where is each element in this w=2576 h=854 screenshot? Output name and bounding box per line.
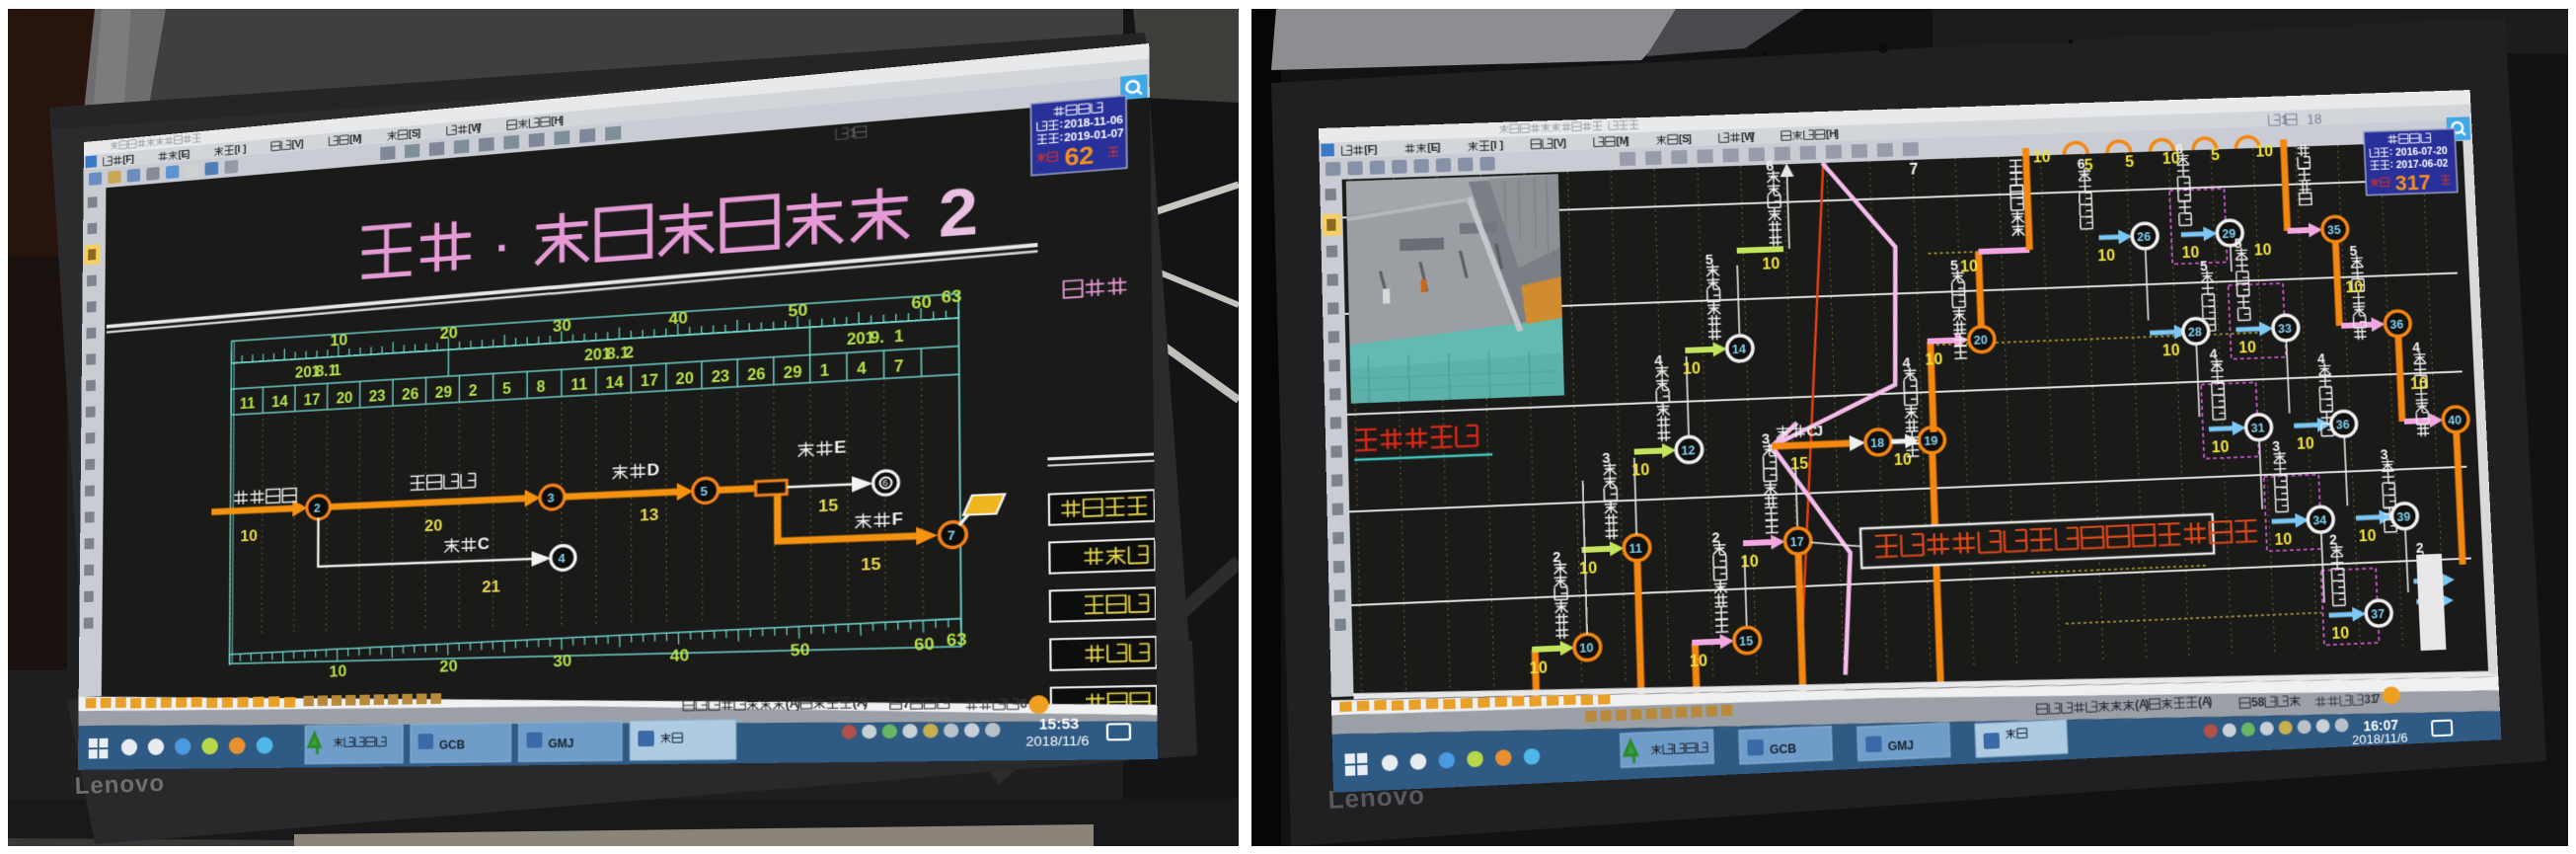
svg-text:GMJ: GMJ xyxy=(1888,738,1915,753)
svg-text:5: 5 xyxy=(502,381,511,399)
svg-text:5: 5 xyxy=(2211,146,2221,164)
svg-text:7: 7 xyxy=(1909,161,1919,179)
svg-text:10: 10 xyxy=(2274,530,2293,549)
svg-text:20: 20 xyxy=(439,657,458,675)
svg-text:11: 11 xyxy=(240,396,256,414)
svg-text:15: 15 xyxy=(1739,634,1754,649)
svg-text:8: 8 xyxy=(537,379,546,397)
svg-text:12: 12 xyxy=(1681,443,1696,457)
svg-text:2: 2 xyxy=(295,364,303,381)
svg-text:]: ] xyxy=(358,133,362,145)
svg-text:5: 5 xyxy=(2125,153,2135,171)
svg-text:10: 10 xyxy=(1925,350,1943,368)
svg-text:37: 37 xyxy=(2371,607,2385,621)
svg-text:10: 10 xyxy=(1690,652,1708,670)
svg-text:29: 29 xyxy=(784,363,802,382)
svg-text:2: 2 xyxy=(469,383,478,401)
svg-text:10: 10 xyxy=(2358,527,2376,545)
svg-text:10: 10 xyxy=(1683,359,1702,378)
svg-text:8: 8 xyxy=(316,363,325,381)
svg-text:): ) xyxy=(2145,697,2150,711)
svg-text:Lenovo: Lenovo xyxy=(74,770,165,800)
svg-text:62: 62 xyxy=(1064,141,1094,171)
svg-text:29: 29 xyxy=(435,384,452,402)
svg-text:34: 34 xyxy=(2312,513,2326,527)
svg-text:14: 14 xyxy=(271,394,288,412)
svg-text:11: 11 xyxy=(1629,542,1642,557)
svg-text:10: 10 xyxy=(1529,659,1548,677)
svg-text:10: 10 xyxy=(1762,255,1780,272)
svg-text::: : xyxy=(1059,118,1063,130)
svg-text:GMJ: GMJ xyxy=(548,738,573,751)
svg-text:35: 35 xyxy=(2327,223,2341,237)
svg-text:2: 2 xyxy=(314,503,321,515)
svg-text::: : xyxy=(2389,160,2393,171)
svg-text:11: 11 xyxy=(570,376,587,395)
svg-text:10: 10 xyxy=(1960,258,1978,275)
svg-text:0: 0 xyxy=(303,364,311,381)
svg-text:15:53: 15:53 xyxy=(1039,716,1080,733)
svg-text:2: 2 xyxy=(939,175,979,251)
svg-text:D: D xyxy=(646,461,659,480)
svg-text:23: 23 xyxy=(712,368,730,387)
svg-text:]: ] xyxy=(1499,140,1503,152)
svg-text:F: F xyxy=(892,510,903,530)
svg-text:C: C xyxy=(478,535,490,554)
svg-text:36: 36 xyxy=(2336,418,2350,431)
svg-text:7: 7 xyxy=(947,529,955,543)
svg-text:]: ] xyxy=(1437,142,1441,154)
svg-text:2016-07-20: 2016-07-20 xyxy=(2395,145,2448,158)
svg-text:17: 17 xyxy=(641,372,658,391)
svg-text:40: 40 xyxy=(2448,414,2462,427)
svg-text:0: 0 xyxy=(593,346,602,363)
svg-text:): ) xyxy=(2208,695,2213,709)
svg-text:26: 26 xyxy=(402,386,418,404)
svg-text:63: 63 xyxy=(942,287,962,308)
svg-text:.: . xyxy=(615,345,620,362)
svg-text:40: 40 xyxy=(669,309,688,329)
svg-text:17: 17 xyxy=(1789,535,1804,550)
svg-text:10: 10 xyxy=(240,527,258,546)
svg-text:14: 14 xyxy=(605,374,623,393)
svg-text:I: I xyxy=(238,144,241,156)
svg-text:10: 10 xyxy=(2162,342,2180,359)
svg-text:2017-06-02: 2017-06-02 xyxy=(2396,158,2449,171)
svg-text:]: ] xyxy=(243,144,246,156)
svg-text:]: ] xyxy=(187,149,189,161)
svg-text:19: 19 xyxy=(1924,434,1937,448)
svg-text:36: 36 xyxy=(2389,318,2403,332)
svg-text:20: 20 xyxy=(676,370,694,389)
svg-text:15: 15 xyxy=(818,497,838,516)
svg-text:9: 9 xyxy=(871,329,880,348)
svg-text:6: 6 xyxy=(882,478,888,489)
svg-text:2: 2 xyxy=(625,344,634,361)
svg-text:4: 4 xyxy=(857,360,867,379)
svg-text:10: 10 xyxy=(330,331,347,349)
svg-text:10: 10 xyxy=(2331,624,2350,643)
svg-text:2: 2 xyxy=(847,331,857,349)
svg-text:10: 10 xyxy=(2097,247,2115,265)
svg-text:]: ] xyxy=(560,116,564,127)
svg-text:17: 17 xyxy=(304,392,321,410)
svg-text:7: 7 xyxy=(2374,692,2382,706)
svg-text:18: 18 xyxy=(2307,112,2322,127)
svg-text:8: 8 xyxy=(607,346,616,363)
svg-text:7: 7 xyxy=(894,358,904,377)
svg-text:20: 20 xyxy=(424,516,442,535)
svg-text:10: 10 xyxy=(2238,339,2256,356)
svg-text:]: ] xyxy=(1835,128,1839,140)
svg-text:5: 5 xyxy=(701,486,709,500)
svg-text:50: 50 xyxy=(790,641,810,660)
svg-text:2: 2 xyxy=(584,347,593,364)
svg-text:10: 10 xyxy=(1894,451,1913,470)
svg-text:33: 33 xyxy=(2278,322,2292,336)
svg-text:63: 63 xyxy=(947,630,967,651)
svg-text:317: 317 xyxy=(2394,170,2431,195)
svg-text:14: 14 xyxy=(1732,343,1746,356)
svg-text:10: 10 xyxy=(2345,278,2363,296)
svg-text:28: 28 xyxy=(2188,325,2202,339)
svg-text:10: 10 xyxy=(1579,559,1598,578)
svg-text:.: . xyxy=(879,329,884,348)
svg-text:E: E xyxy=(834,438,846,458)
svg-text:3: 3 xyxy=(547,493,554,506)
svg-text:10: 10 xyxy=(1631,461,1650,480)
svg-text:23: 23 xyxy=(369,388,386,406)
svg-text:0: 0 xyxy=(856,330,866,349)
svg-text:10: 10 xyxy=(2410,375,2428,393)
svg-text:]: ] xyxy=(477,122,481,134)
svg-text:20: 20 xyxy=(1974,334,1988,348)
svg-text:10: 10 xyxy=(2211,438,2229,456)
svg-text:10: 10 xyxy=(1579,641,1594,656)
svg-text:]: ] xyxy=(1626,136,1629,148)
svg-text:1: 1 xyxy=(894,328,904,347)
svg-text::: : xyxy=(1059,132,1063,144)
svg-text:]: ] xyxy=(1374,144,1378,156)
svg-text:1: 1 xyxy=(849,126,857,140)
svg-text:): ) xyxy=(864,696,869,710)
svg-text:1: 1 xyxy=(820,362,830,381)
svg-text:4: 4 xyxy=(558,553,566,567)
svg-text:30: 30 xyxy=(553,317,571,337)
svg-text:1: 1 xyxy=(333,362,341,380)
svg-text:10: 10 xyxy=(329,662,346,681)
svg-text:60: 60 xyxy=(914,635,935,656)
svg-text:39: 39 xyxy=(2396,510,2410,524)
svg-text:]: ] xyxy=(1750,131,1754,143)
svg-text:31: 31 xyxy=(2250,422,2264,435)
svg-text:21: 21 xyxy=(482,578,500,596)
svg-text:2018/11/6: 2018/11/6 xyxy=(1025,735,1089,749)
svg-text:10: 10 xyxy=(2253,241,2271,259)
svg-text:26: 26 xyxy=(747,366,766,385)
svg-text:I: I xyxy=(1493,140,1496,152)
svg-text:7: 7 xyxy=(903,698,910,712)
svg-text::: : xyxy=(2389,148,2393,159)
svg-text:60: 60 xyxy=(911,293,932,314)
svg-text:]: ] xyxy=(1562,138,1566,150)
svg-text:13: 13 xyxy=(640,505,658,525)
svg-text:]: ] xyxy=(1688,134,1692,146)
svg-text:18: 18 xyxy=(1870,436,1884,450)
svg-text:·: · xyxy=(495,226,509,273)
svg-text:10: 10 xyxy=(2032,148,2050,166)
svg-text:26: 26 xyxy=(2137,230,2151,244)
svg-text:20: 20 xyxy=(440,324,458,344)
svg-text:40: 40 xyxy=(670,646,690,665)
svg-text:10: 10 xyxy=(2297,434,2314,452)
svg-text:]: ] xyxy=(131,154,134,166)
svg-text:J: J xyxy=(1814,423,1823,439)
svg-text:10: 10 xyxy=(1740,553,1759,572)
svg-text:30: 30 xyxy=(553,652,571,671)
svg-text:50: 50 xyxy=(789,301,808,321)
svg-text:6: 6 xyxy=(1020,698,1027,712)
svg-text:10: 10 xyxy=(2181,244,2199,262)
svg-text:): ) xyxy=(796,697,801,711)
svg-text:GCB: GCB xyxy=(439,738,465,751)
svg-text:]: ] xyxy=(417,128,421,140)
svg-text:10: 10 xyxy=(2255,143,2273,161)
svg-text:15: 15 xyxy=(861,555,881,575)
svg-text:]: ] xyxy=(300,139,303,151)
svg-text:15: 15 xyxy=(1790,455,1809,474)
svg-text:8: 8 xyxy=(2257,695,2265,709)
svg-text:GCB: GCB xyxy=(1770,741,1797,756)
svg-text:20: 20 xyxy=(337,390,353,408)
